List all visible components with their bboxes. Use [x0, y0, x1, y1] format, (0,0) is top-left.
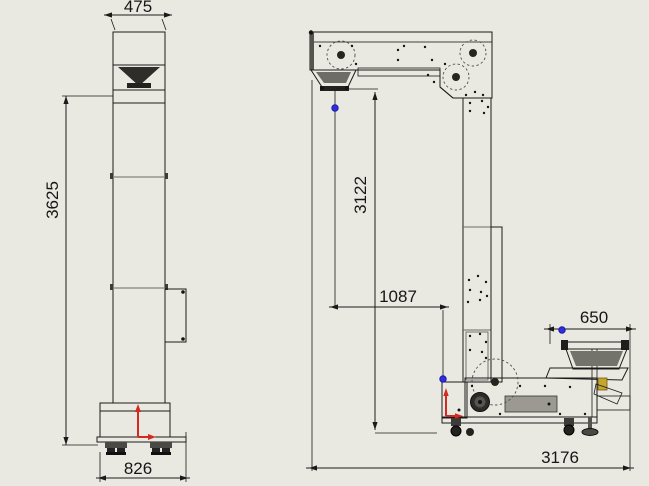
- dim-label-3122: 3122: [351, 176, 370, 214]
- hopper-spout: [127, 83, 151, 88]
- dim-label-826: 826: [124, 459, 152, 478]
- sprocket-hub: [469, 49, 477, 57]
- seam-clip: [110, 173, 113, 179]
- sprocket-hub: [452, 73, 460, 81]
- dim-label-1087: 1087: [379, 287, 417, 306]
- hopper-spout-side: [320, 86, 349, 91]
- reference-point-icon: [559, 327, 565, 333]
- seam-clip: [110, 284, 113, 290]
- bolt: [548, 403, 551, 406]
- arm-end-cap: [310, 32, 314, 70]
- bolt: [320, 86, 324, 90]
- bolt: [181, 337, 185, 341]
- highlight-part: [598, 378, 607, 390]
- sprocket-hub: [491, 378, 499, 386]
- technical-drawing-canvas: 475 3625 826: [0, 0, 649, 486]
- dim-label-475: 475: [124, 0, 152, 16]
- dim-label-3176: 3176: [541, 448, 579, 467]
- dim-label-3625: 3625: [43, 181, 62, 219]
- motor-shaft: [478, 400, 482, 404]
- dim-label-650: 650: [580, 308, 608, 327]
- reference-point-icon: [332, 105, 338, 111]
- seam-clip: [165, 173, 168, 179]
- bolt: [181, 290, 185, 294]
- bolt: [309, 30, 313, 34]
- reference-point-icon: [440, 376, 446, 382]
- infeed-hopper-face: [570, 351, 623, 366]
- sprocket-hub: [337, 51, 345, 59]
